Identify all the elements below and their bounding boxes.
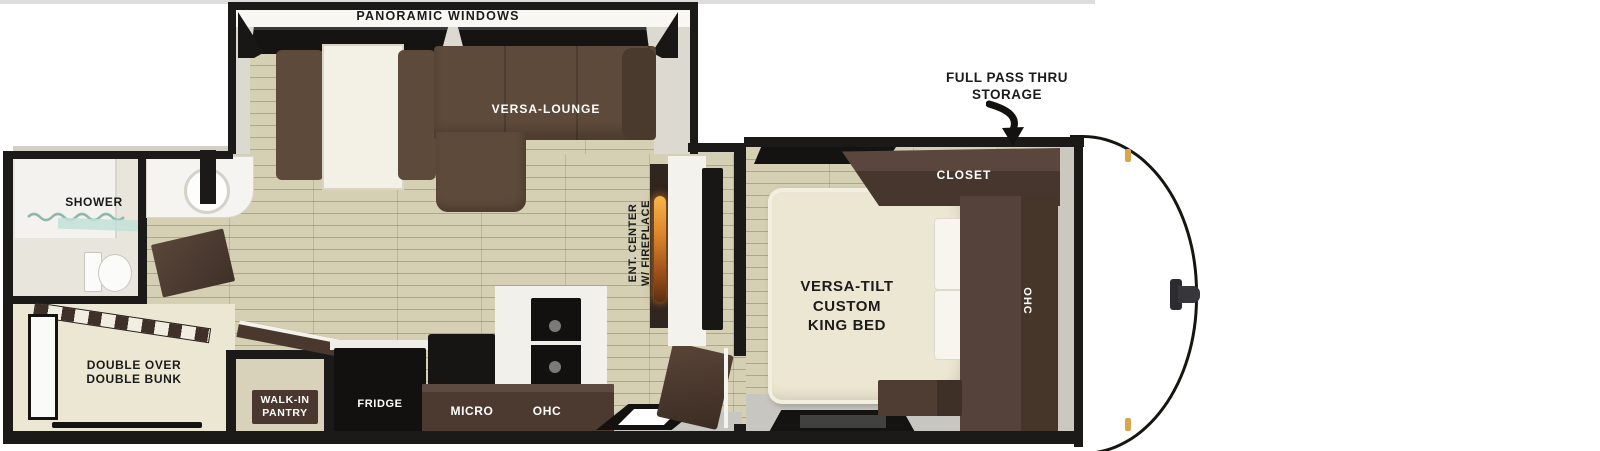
pantry-wall-left [226,350,236,440]
fridge-label: FRIDGE [334,398,426,410]
panoramic-windows-label: PANORAMIC WINDOWS [330,9,546,23]
kitchen-ohc-label: OHC [515,404,579,418]
flip-sofa-arm-left [276,50,324,180]
pantry-label-line1: WALK-IN [252,394,318,407]
nightstand [878,380,962,416]
sink-drain-top [549,320,561,332]
ent-center-label-line1: ENT. CENTER [627,195,640,291]
clearance-light-top [1125,149,1131,162]
toilet-bowl [98,254,132,292]
bedroom-wall-upper [734,144,746,356]
storage-arrow-icon [986,100,1030,148]
bedroom-ohc-cabinet [960,196,1058,432]
clearance-light-bottom [1125,418,1131,431]
hitch-coupler [1178,286,1200,303]
flip-sofa-arm-right [398,50,436,180]
shower-label: SHOWER [38,195,150,209]
tv-panel [702,168,723,330]
slide-wall-top [228,2,698,10]
bedroom-ohc-label: OHC [1017,271,1033,331]
bathroom-wall-bottom [13,296,147,304]
bedroom-window-bottom-glass [800,415,886,428]
versa-lounge-chaise [436,132,526,212]
king-bed-label: VERSA-TILT CUSTOM KING BED [757,277,937,336]
slide-wall-left [228,2,236,154]
wall-top-right [744,137,1084,147]
rv-floorplan: SHOWER DOUBLE OVER DOUBLE BUNK WALK-IN P… [0,0,1600,451]
bunk-label-line2: DOUBLE BUNK [36,372,232,386]
pass-thru-strip [1058,148,1074,431]
pantry-label: WALK-IN PANTRY [252,394,318,420]
king-bed-label-line3: KING BED [757,316,937,336]
sink-drain-bottom [549,361,561,373]
versa-lounge-label: VERSA-LOUNGE [450,102,642,116]
ent-center-cabinet [668,156,706,346]
flip-sofa-bed [322,44,404,190]
entry-door-frame [724,348,728,428]
bunk-label-line1: DOUBLE OVER [36,358,232,372]
wall-bottom [3,431,1083,444]
sink-divider [531,341,581,345]
ent-center-label-line2: W/ FIREPLACE [640,195,653,291]
wall-top-left [3,151,233,159]
pass-thru-storage-label-line1: FULL PASS THRU [933,69,1081,86]
slide-wall-right [690,2,698,154]
wall-left [3,151,13,444]
ent-center-label: ENT. CENTER W/ FIREPLACE [627,195,657,291]
king-bed-label-line1: VERSA-TILT [757,277,937,297]
bunk-label: DOUBLE OVER DOUBLE BUNK [36,358,232,386]
cooktop [428,334,496,386]
micro-label: MICRO [432,404,512,418]
versa-lounge-arm-right [622,48,656,140]
bunk-edge-line [52,422,202,428]
pass-thru-storage-label: FULL PASS THRU STORAGE [933,69,1081,103]
fridge [334,348,426,432]
pantry-label-line2: PANTRY [252,407,318,420]
king-bed-label-line2: CUSTOM [757,297,937,317]
wall-right [1074,137,1083,447]
closet-label: CLOSET [898,168,1030,182]
